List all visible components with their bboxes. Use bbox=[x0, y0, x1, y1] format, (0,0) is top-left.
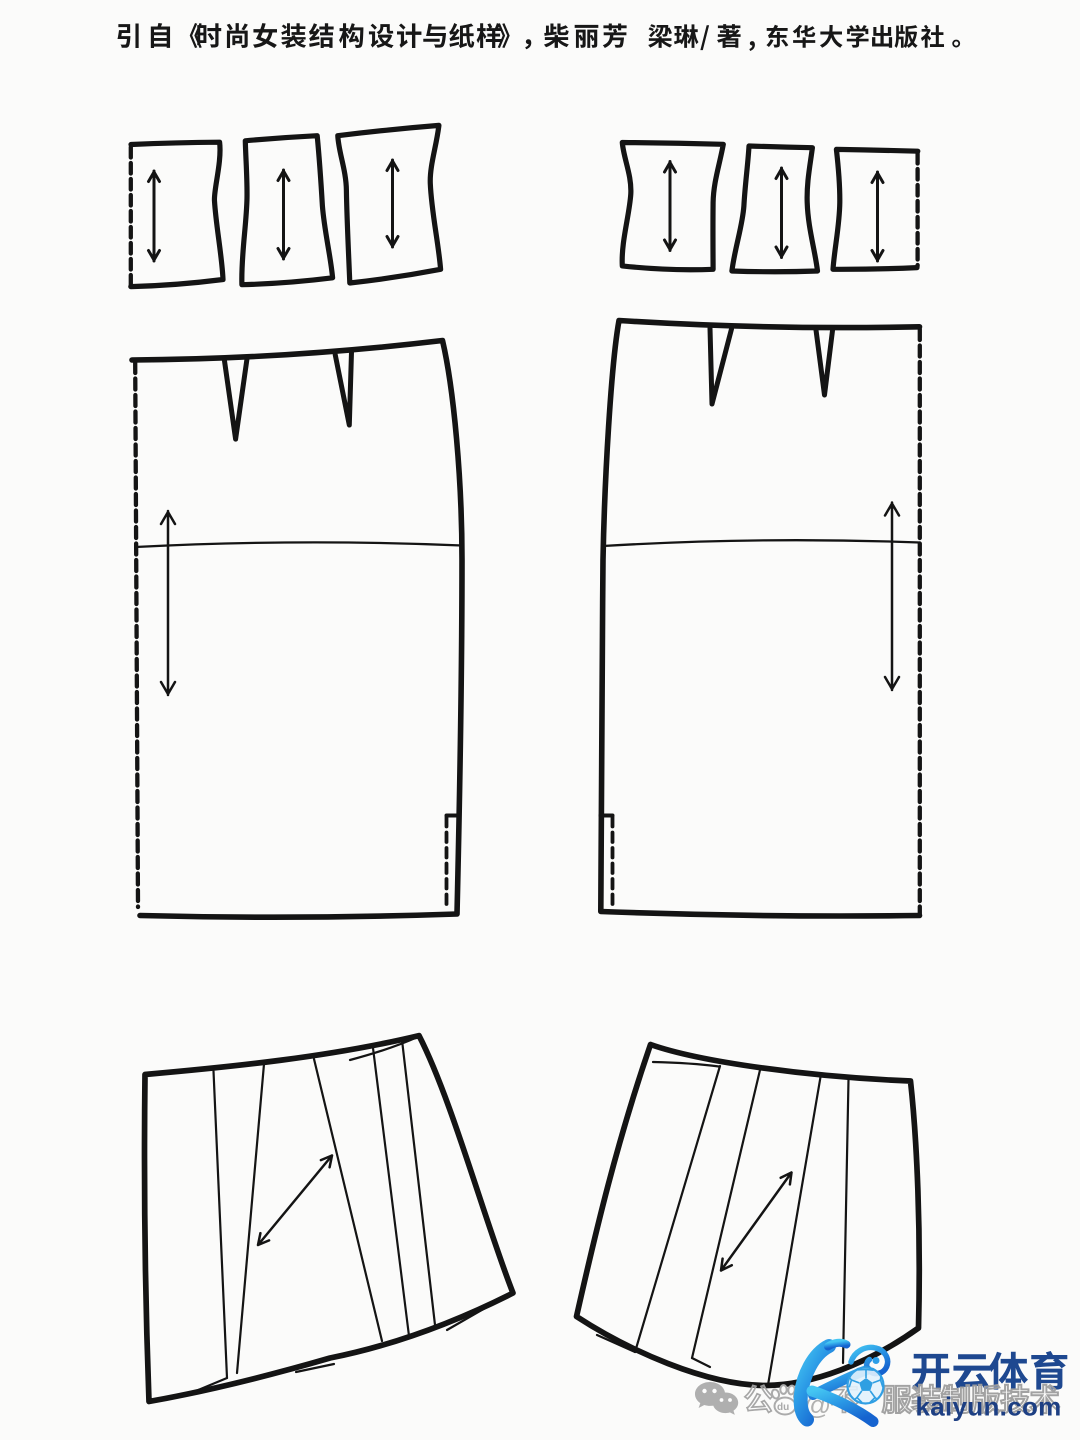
svg-text:kaiyun.com: kaiyun.com bbox=[916, 1392, 1062, 1422]
svg-text:du: du bbox=[777, 1402, 789, 1413]
